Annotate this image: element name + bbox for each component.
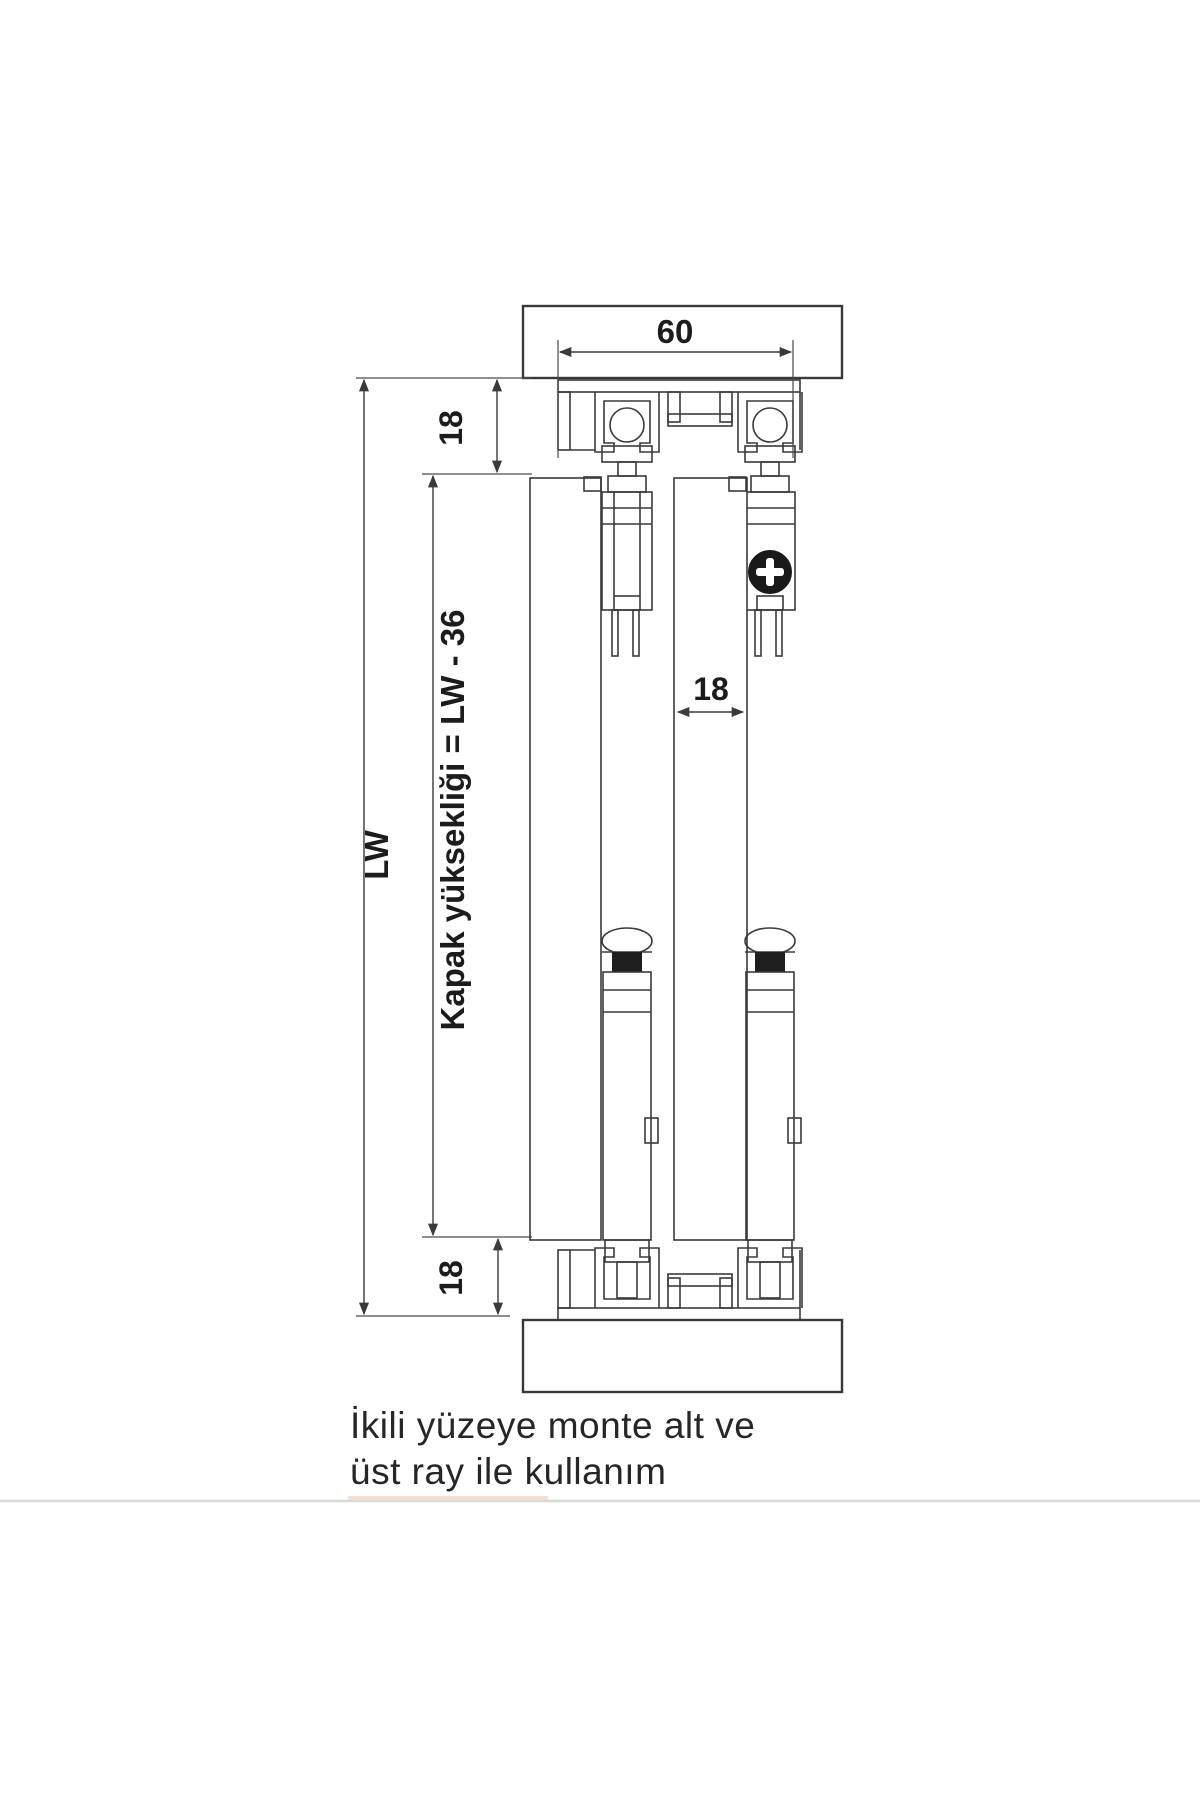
bottom-guide-pin [760,1262,780,1298]
hanger-pin [612,610,618,656]
dim-label-60: 60 [657,313,694,350]
roller-wheel-icon [753,408,787,442]
mushroom-pin-cap [602,928,652,954]
dim-label-18-mid: 18 [693,671,729,707]
caption-line-1: İkili yüzeye monte alt ve [350,1405,755,1446]
left-top-roller-hanger [602,408,652,656]
right-door-panel [674,477,747,1240]
caption: İkili yüzeye monte alt ve üst ray ile ku… [350,1405,755,1492]
bottom-rail-profile [558,1248,802,1320]
phillips-screw-icon [749,551,791,593]
dim-label-18-top: 18 [433,410,469,446]
spring-block [612,952,642,972]
dimension-top-clearance: 18 [422,380,532,474]
dimension-door-height: Kapak yüksekliği = LW - 36 [422,476,532,1237]
dim-label-lw: LW [358,829,395,879]
dim-label-door-height: Kapak yüksekliği = LW - 36 [434,610,471,1031]
left-bottom-slider [602,928,658,1298]
left-door-panel [530,477,601,1240]
technical-drawing-page: 60 LW 18 Kapak yüksekliği = LW - 36 18 1… [0,0,1200,1800]
hanger-pin [633,610,639,656]
hanger-pin [755,610,761,656]
dimension-bottom-clearance: 18 [433,1239,498,1314]
hanger-pin [776,610,782,656]
right-top-roller-hanger [745,408,795,656]
right-bottom-slider [745,928,801,1298]
caption-line-2: üst ray ile kullanım [350,1451,666,1492]
dim-label-18-bottom: 18 [433,1260,469,1296]
bottom-guide-pin [617,1262,637,1298]
mushroom-pin-cap [745,928,795,954]
bottom-panel-board [523,1320,842,1392]
bottom-separator [0,1496,1200,1502]
spring-block [755,952,785,972]
sliding-door-section-diagram: 60 LW 18 Kapak yüksekliği = LW - 36 18 1… [0,0,1200,1800]
roller-wheel-icon [610,408,644,442]
